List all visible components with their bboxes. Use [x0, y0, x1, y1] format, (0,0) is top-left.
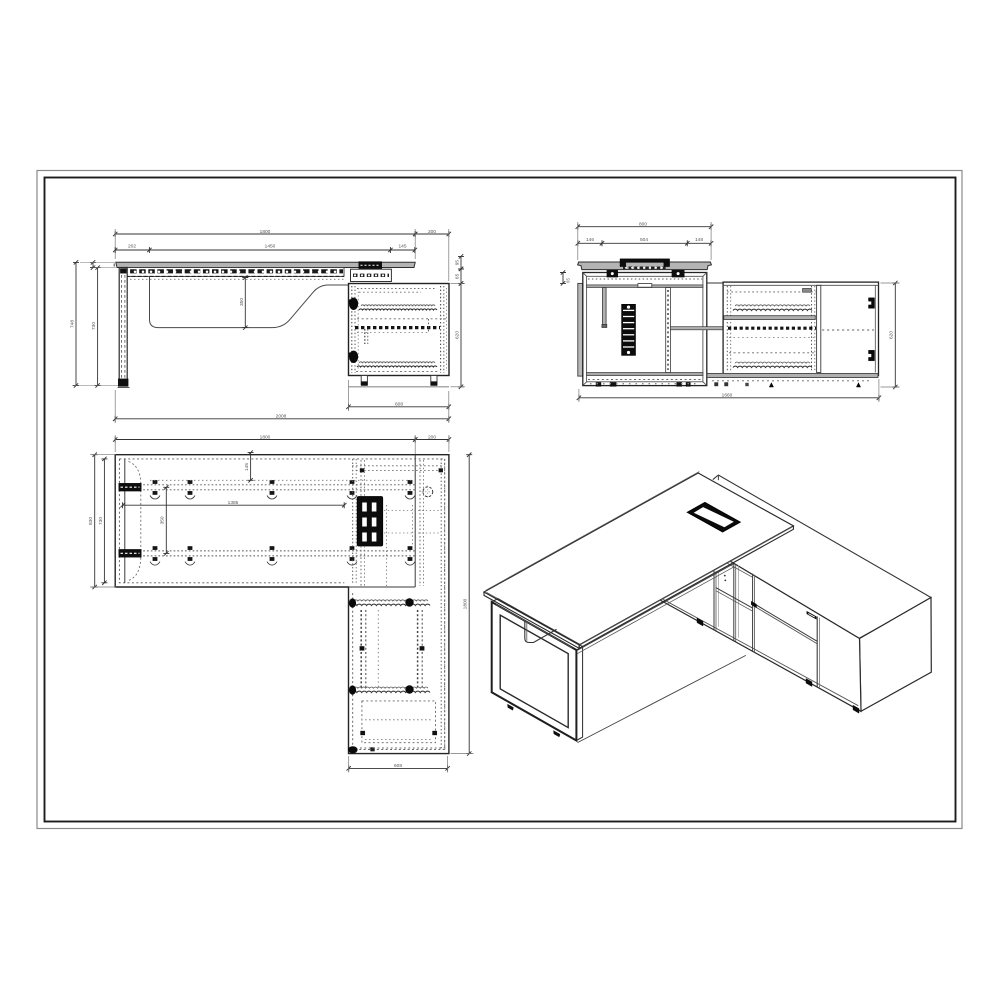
- svg-text:620: 620: [889, 331, 895, 339]
- svg-text:608: 608: [395, 402, 403, 408]
- svg-text:200: 200: [428, 229, 436, 235]
- svg-text:145: 145: [244, 463, 250, 471]
- svg-text:202: 202: [128, 244, 136, 250]
- svg-text:1385: 1385: [228, 500, 239, 506]
- svg-text:1800: 1800: [260, 229, 271, 235]
- svg-text:2008: 2008: [276, 414, 287, 420]
- svg-text:800: 800: [639, 222, 647, 228]
- svg-text:830: 830: [88, 517, 94, 525]
- svg-text:145: 145: [398, 244, 406, 250]
- svg-text:730: 730: [98, 517, 104, 525]
- svg-text:200: 200: [428, 434, 436, 440]
- svg-text:748: 748: [69, 320, 75, 328]
- svg-text:1450: 1450: [265, 244, 276, 250]
- svg-text:350: 350: [160, 516, 166, 524]
- svg-text:1660: 1660: [722, 393, 733, 399]
- svg-text:620: 620: [454, 331, 460, 339]
- svg-text:65: 65: [454, 273, 460, 279]
- svg-text:95: 95: [454, 260, 460, 266]
- svg-text:148: 148: [695, 237, 703, 243]
- svg-text:350: 350: [239, 298, 245, 306]
- svg-text:730: 730: [91, 322, 97, 330]
- svg-text:1800: 1800: [463, 598, 469, 609]
- svg-text:146: 146: [586, 237, 594, 243]
- svg-text:504: 504: [640, 237, 648, 243]
- svg-text:1800: 1800: [260, 434, 271, 440]
- svg-text:608: 608: [394, 763, 402, 769]
- svg-text:65: 65: [566, 278, 571, 283]
